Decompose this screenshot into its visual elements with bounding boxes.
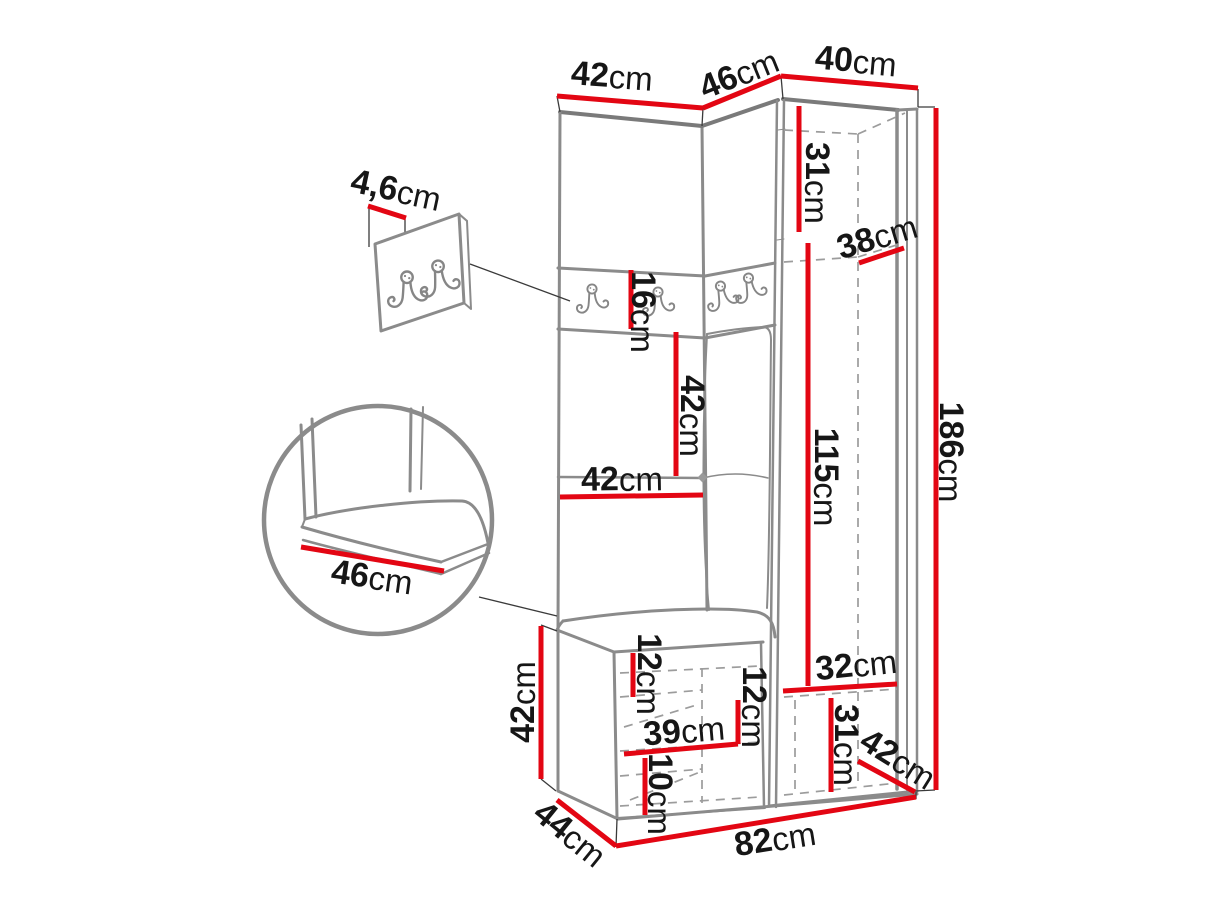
dimension-label-shoe-top-opening: 12cm <box>630 633 668 715</box>
zoom-circle <box>264 406 492 634</box>
dimension-line-top-width-left <box>557 96 703 108</box>
dimension-label-base-depth: 44cm <box>526 793 614 874</box>
dimension-label-top-width-middle: 46cm <box>694 41 784 107</box>
dimension-label-bench-height: 42cm <box>504 661 542 743</box>
furniture-dimension-diagram: 42cm46cm40cm4,6cm31cm38cm16cm42cm42cm115… <box>0 0 1214 911</box>
dimension-label-shoe-shelf-width: 39cm <box>642 709 727 754</box>
dimension-label-mid-width: 42cm <box>581 459 663 498</box>
coat-hook-icon <box>577 284 608 312</box>
dimension-label-top-width-right: 40cm <box>814 39 899 84</box>
dimension-label-mid-height: 42cm <box>673 375 711 457</box>
detail-leader-line <box>479 597 557 616</box>
dimension-label-top-width-left: 42cm <box>570 54 654 98</box>
dimension-label-interior-height: 115cm <box>807 428 845 527</box>
dimension-label-total-height: 186cm <box>932 402 970 503</box>
diagram-canvas: 42cm46cm40cm4,6cm31cm38cm16cm42cm42cm115… <box>0 0 1214 911</box>
hook-panel-detail <box>369 207 570 331</box>
upholstered-back-panel <box>698 327 771 610</box>
dimension-label-base-width: 82cm <box>732 814 819 864</box>
detail-leader-line <box>470 264 570 301</box>
dimension-label-right-bottom-width: 32cm <box>813 642 898 688</box>
coat-hook-row <box>577 271 768 315</box>
bench-zoom-detail <box>264 406 557 634</box>
left-tall-cabinet <box>558 112 707 630</box>
dimension-label-shoe-bottom-opening: 10cm <box>641 753 679 835</box>
dimension-label-panel-depth: 4,6cm <box>347 162 444 218</box>
coat-hook-icon <box>705 279 740 311</box>
dimension-label-hook-band-height: 16cm <box>624 271 662 353</box>
dimension-label-shoe-mid-opening: 12cm <box>735 666 773 748</box>
dimension-label-upper-shelf-height: 31cm <box>798 142 836 224</box>
